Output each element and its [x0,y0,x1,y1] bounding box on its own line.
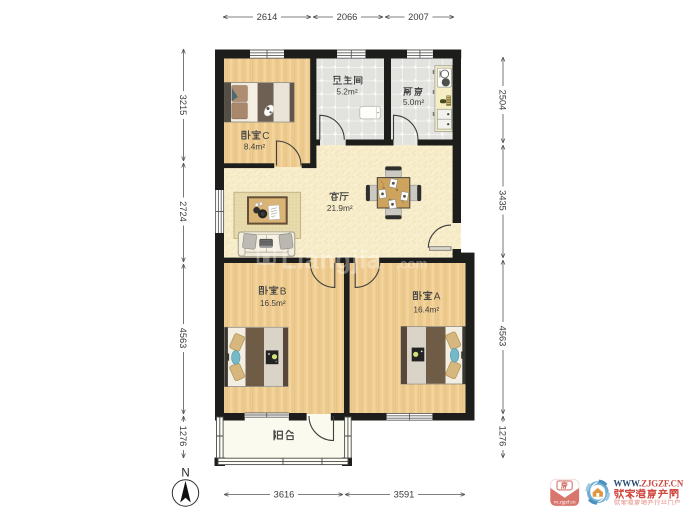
svg-text:2007: 2007 [408,12,429,22]
svg-text:2724: 2724 [178,201,188,222]
svg-text:C: C [262,131,269,142]
svg-text:21.9m²: 21.9m² [327,203,353,213]
svg-text:m.zjgzf.cn: m.zjgzf.cn [554,500,576,506]
svg-text:1276: 1276 [498,426,508,447]
svg-text:2614: 2614 [257,12,278,22]
svg-text:2504: 2504 [498,90,508,111]
svg-text:B: B [280,286,287,297]
svg-text:3616: 3616 [274,490,295,500]
svg-text:16.5m²: 16.5m² [260,298,286,308]
svg-text:N: N [181,467,189,479]
svg-text:5.0m²: 5.0m² [403,97,424,107]
svg-text:3215: 3215 [178,95,188,116]
svg-text:8.4m²: 8.4m² [244,142,265,152]
svg-text:4563: 4563 [178,328,188,349]
svg-text:3435: 3435 [498,190,508,211]
svg-text:5.2m²: 5.2m² [336,86,357,96]
svg-text:16.4m²: 16.4m² [413,304,439,314]
svg-text:A: A [434,292,441,303]
svg-text:Liangjia: Liangjia [281,247,382,275]
svg-text:3591: 3591 [394,490,415,500]
svg-text:2066: 2066 [337,12,358,22]
svg-text:.com: .com [396,257,428,272]
svg-text:1276: 1276 [178,426,188,447]
svg-text:4563: 4563 [498,326,508,347]
svg-text:WWW.ZJGZF.CN: WWW.ZJGZF.CN [614,479,684,489]
